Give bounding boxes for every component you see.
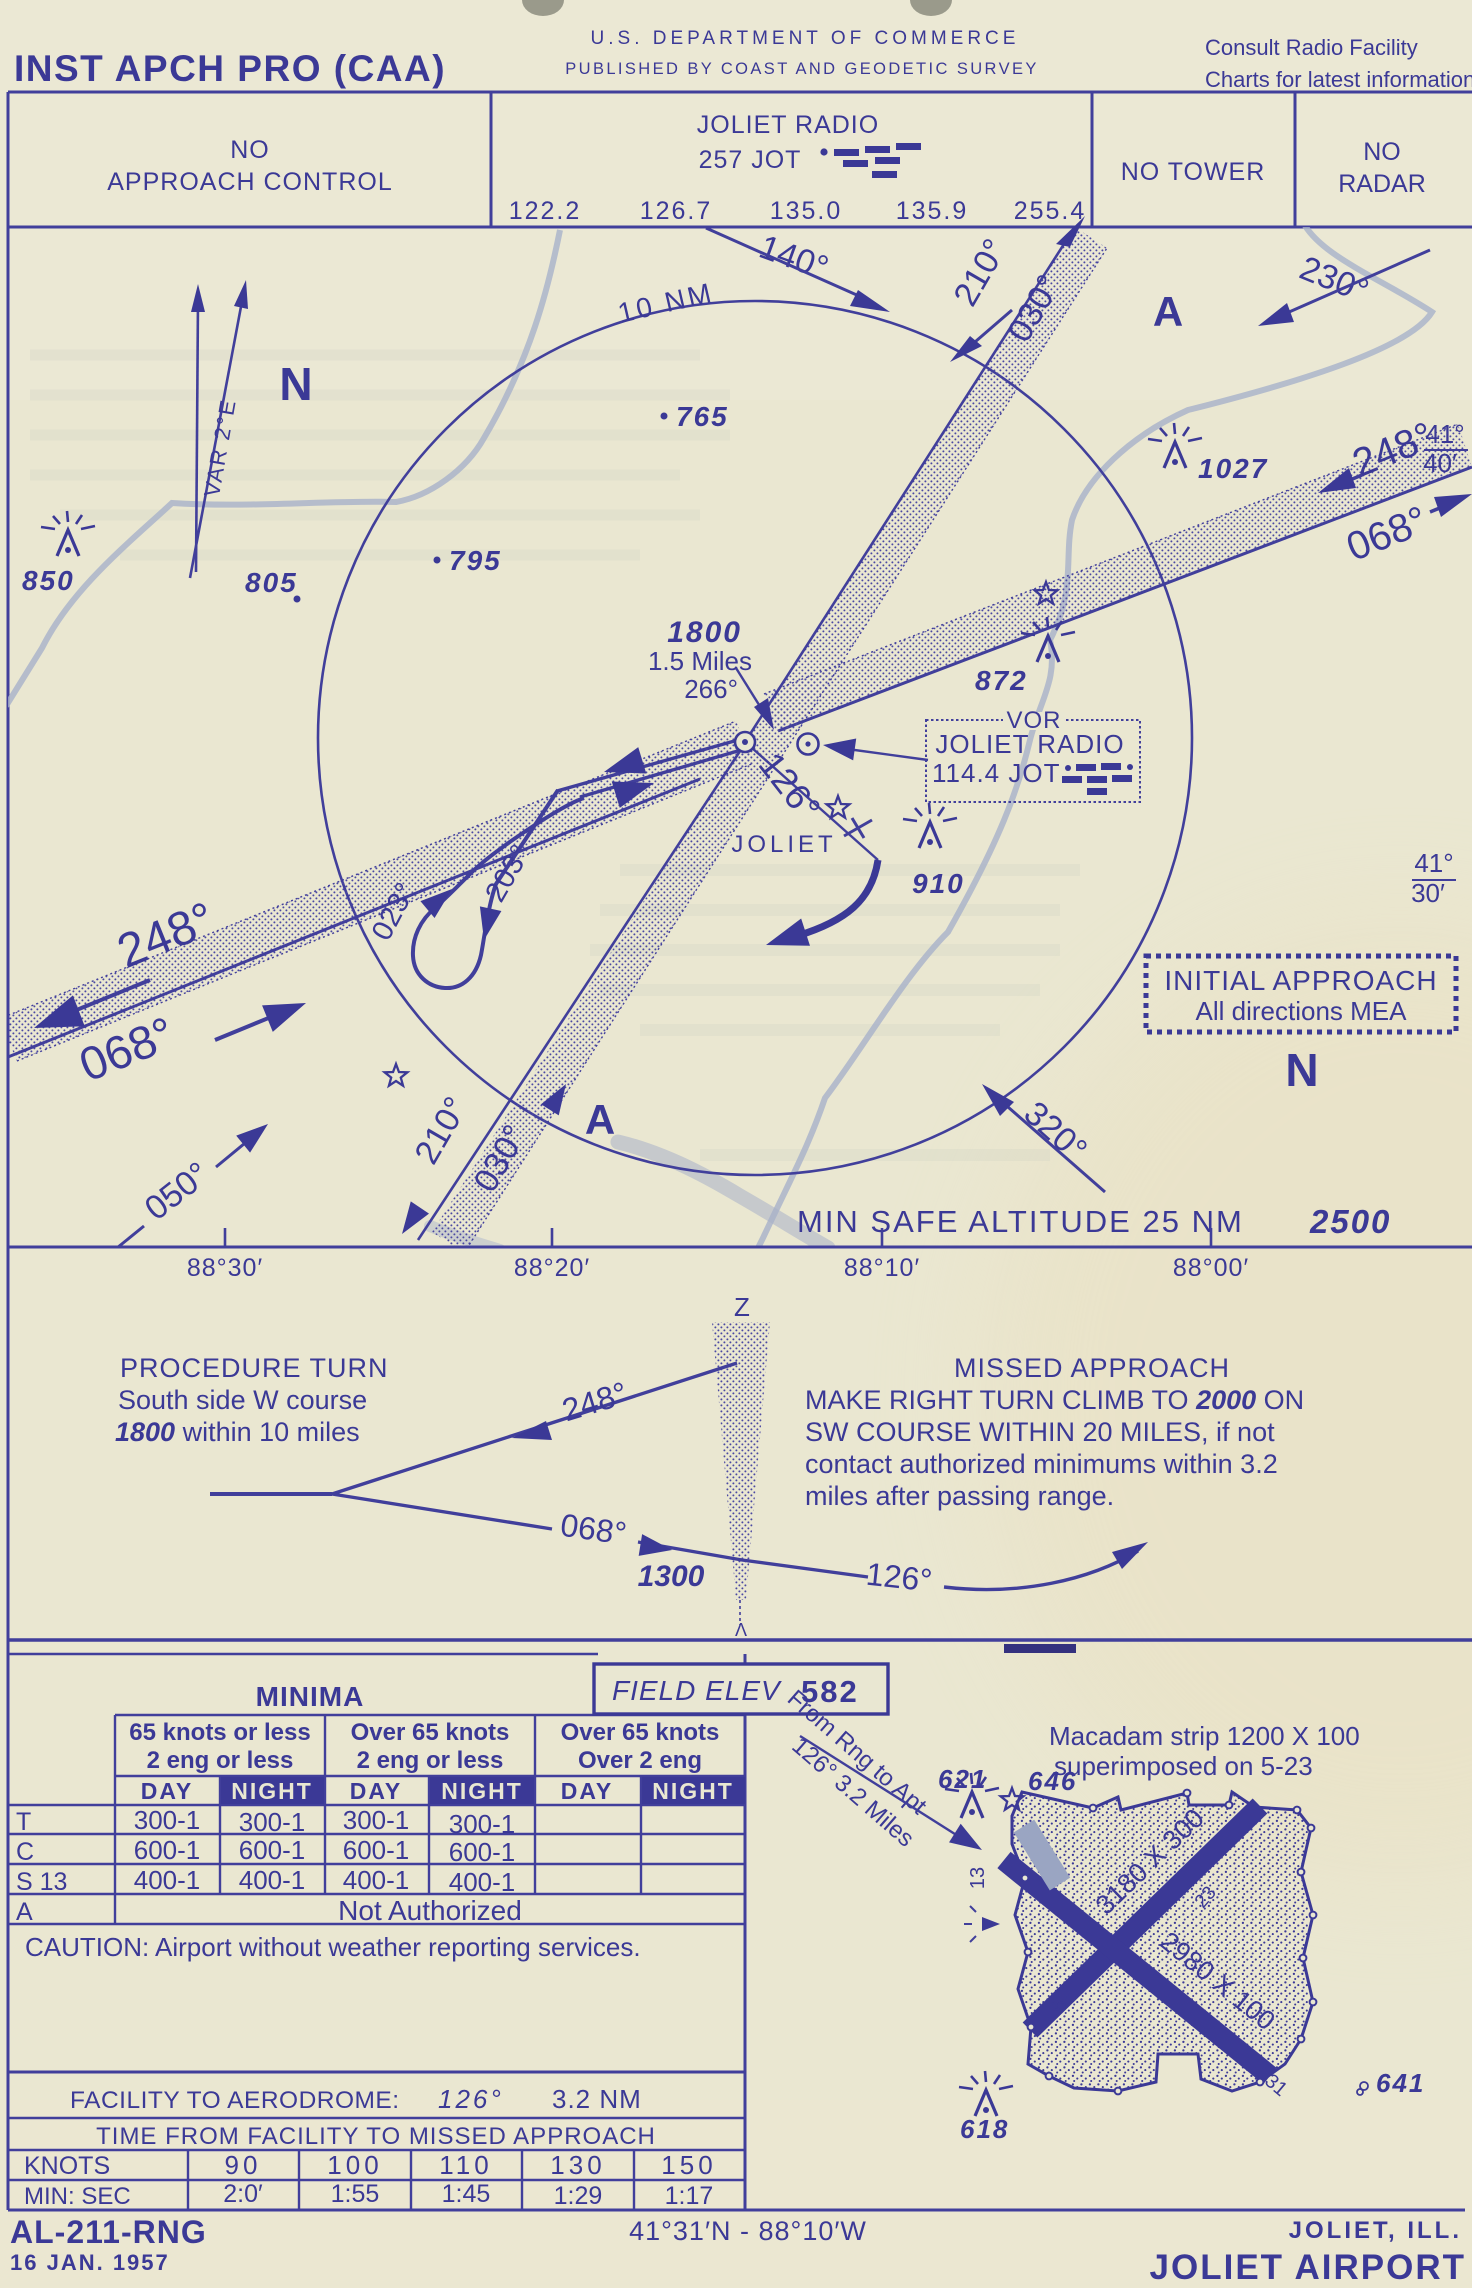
svg-text:300-1: 300-1 xyxy=(449,1809,516,1839)
svg-text:INST APCH PRO (CAA): INST APCH PRO (CAA) xyxy=(14,48,446,89)
svg-text:AL-211-RNG: AL-211-RNG xyxy=(10,2214,207,2250)
svg-text:T: T xyxy=(16,1808,31,1836)
svg-text:miles after passing range.: miles after passing range. xyxy=(805,1481,1114,1511)
svg-text:850: 850 xyxy=(22,565,75,596)
svg-text:1300: 1300 xyxy=(638,1560,705,1593)
svg-text:40′: 40′ xyxy=(1423,448,1457,478)
svg-text:65 knots or less: 65 knots or less xyxy=(129,1719,310,1746)
svg-text:114.4 JOT: 114.4 JOT xyxy=(932,758,1060,788)
svg-text:16 JAN. 1957: 16 JAN. 1957 xyxy=(10,2250,170,2275)
svg-text:300-1: 300-1 xyxy=(239,1807,306,1837)
svg-text:NO: NO xyxy=(230,136,270,164)
svg-text:MIN: SEC: MIN: SEC xyxy=(24,2183,131,2210)
svg-text:30′: 30′ xyxy=(1411,878,1445,908)
svg-text:superimposed on 5-23: superimposed on 5-23 xyxy=(1054,1751,1313,1781)
svg-text:126°: 126° xyxy=(864,1556,934,1599)
svg-text:Over 65 knots: Over 65 knots xyxy=(561,1719,720,1746)
svg-text:3.2 NM: 3.2 NM xyxy=(552,2084,642,2114)
svg-text:DAY: DAY xyxy=(561,1778,613,1804)
svg-text:130: 130 xyxy=(550,2150,605,2180)
svg-text:DAY: DAY xyxy=(141,1778,193,1804)
svg-text:1.5 Miles: 1.5 Miles xyxy=(648,646,752,676)
svg-text:2 eng or less: 2 eng or less xyxy=(147,1747,294,1774)
svg-text:300-1: 300-1 xyxy=(134,1805,201,1835)
svg-text:C: C xyxy=(16,1838,34,1866)
svg-text:APPROACH CONTROL: APPROACH CONTROL xyxy=(107,168,392,196)
svg-text:A: A xyxy=(1153,288,1183,335)
svg-text:400-1: 400-1 xyxy=(449,1867,516,1897)
svg-text:PUBLISHED BY COAST AND GEODETI: PUBLISHED BY COAST AND GEODETIC SURVEY xyxy=(565,60,1039,78)
svg-text:U.S. DEPARTMENT OF COMMERCE: U.S. DEPARTMENT OF COMMERCE xyxy=(591,28,1020,49)
svg-text:JOLIET: JOLIET xyxy=(731,831,836,858)
svg-text:1800 within 10 miles: 1800 within 10 miles xyxy=(115,1417,360,1447)
svg-text:CAUTION: Airport without weat: CAUTION: Airport without weather reporti… xyxy=(25,1932,641,1962)
svg-text:1:17: 1:17 xyxy=(665,2182,714,2210)
svg-text:MAKE RIGHT TURN CLIMB TO 2000: MAKE RIGHT TURN CLIMB TO 2000 ON xyxy=(805,1385,1304,1415)
svg-text:805: 805 xyxy=(245,567,298,598)
svg-text:TIME FROM FACILITY TO MISS: TIME FROM FACILITY TO MISSED APPROACH xyxy=(96,2123,656,2150)
svg-text:126°: 126° xyxy=(438,2084,504,2114)
svg-text:1:29: 1:29 xyxy=(554,2182,603,2210)
svg-text:641: 641 xyxy=(1376,2068,1425,2098)
svg-text:JOLIET AIRPORT: JOLIET AIRPORT xyxy=(1150,2248,1466,2287)
svg-text:110: 110 xyxy=(439,2150,492,2180)
svg-text:135.0: 135.0 xyxy=(770,197,843,225)
svg-text:NO: NO xyxy=(1363,138,1401,166)
svg-text:400-1: 400-1 xyxy=(134,1865,201,1895)
svg-text:All directions MEA: All directions MEA xyxy=(1196,996,1408,1026)
svg-text:SW COURSE WITHIN 20 MILES, if: SW COURSE WITHIN 20 MILES, if not xyxy=(805,1417,1275,1447)
svg-text:255.4: 255.4 xyxy=(1014,197,1087,225)
svg-text:1800: 1800 xyxy=(667,616,742,649)
svg-text:150: 150 xyxy=(661,2150,716,2180)
svg-text:Not Authorized: Not Authorized xyxy=(338,1895,522,1926)
svg-text:400-1: 400-1 xyxy=(239,1865,306,1895)
svg-text:N: N xyxy=(279,358,312,410)
svg-text:JOLIET, ILL.: JOLIET, ILL. xyxy=(1289,2217,1462,2244)
svg-text:618: 618 xyxy=(960,2114,1009,2144)
svg-text:MISSED APPROACH: MISSED APPROACH xyxy=(954,1353,1230,1383)
svg-text:Z: Z xyxy=(734,1292,750,1322)
svg-text:RADAR: RADAR xyxy=(1338,170,1426,198)
svg-text:266°: 266° xyxy=(684,674,738,704)
svg-text:NO TOWER: NO TOWER xyxy=(1121,158,1266,186)
svg-text:400-1: 400-1 xyxy=(343,1865,410,1895)
svg-text:JOLIET RADIO: JOLIET RADIO xyxy=(697,111,879,139)
svg-text:Λ: Λ xyxy=(735,1620,747,1640)
svg-text:126.7: 126.7 xyxy=(640,197,713,225)
svg-text:13: 13 xyxy=(967,1867,989,1889)
svg-text:Consult Radio Facility: Consult Radio Facility xyxy=(1205,35,1418,60)
svg-text:Macadam strip 1200 X 100: Macadam strip 1200 X 100 xyxy=(1049,1721,1360,1751)
svg-text:Over 2 eng: Over 2 eng xyxy=(578,1747,702,1774)
svg-text:100: 100 xyxy=(327,2150,382,2180)
svg-text:NIGHT: NIGHT xyxy=(652,1778,734,1804)
svg-text:1:55: 1:55 xyxy=(331,2180,380,2208)
svg-text:5: 5 xyxy=(1049,2000,1071,2011)
svg-text:A: A xyxy=(585,1096,615,1143)
svg-text:JOLIET RADIO: JOLIET RADIO xyxy=(935,729,1124,759)
svg-text:2 eng or less: 2 eng or less xyxy=(357,1747,504,1774)
svg-text:872: 872 xyxy=(975,665,1028,696)
svg-text:646: 646 xyxy=(1028,1766,1077,1796)
svg-text:90: 90 xyxy=(225,2150,262,2180)
svg-text:135.9: 135.9 xyxy=(896,197,969,225)
svg-text:NIGHT: NIGHT xyxy=(231,1778,313,1804)
svg-text:41°: 41° xyxy=(1425,419,1464,449)
svg-text:257 JOT: 257 JOT xyxy=(699,146,802,174)
svg-text:1027: 1027 xyxy=(1198,453,1268,484)
svg-text:41°31′N - 88°10′W: 41°31′N - 88°10′W xyxy=(629,2216,867,2246)
svg-text:INITIAL APPROACH: INITIAL APPROACH xyxy=(1164,965,1437,996)
svg-text:Charts for latest information: Charts for latest information xyxy=(1205,67,1472,92)
svg-text:765: 765 xyxy=(676,401,729,432)
svg-text:MINIMA: MINIMA xyxy=(256,1681,365,1712)
svg-text:FIELD ELEV: FIELD ELEV xyxy=(612,1675,782,1706)
svg-text:122.2: 122.2 xyxy=(509,197,582,225)
svg-text:DAY: DAY xyxy=(350,1778,402,1804)
svg-text:910: 910 xyxy=(912,868,965,899)
svg-text:FACILITY TO AERODROME:: FACILITY TO AERODROME: xyxy=(70,2087,400,2114)
svg-text:MIN SAFE ALTITUDE 25 NM: MIN SAFE ALTITUDE 25 NM xyxy=(797,1204,1244,1239)
svg-text:NIGHT: NIGHT xyxy=(441,1778,523,1804)
svg-text:N: N xyxy=(1285,1044,1318,1096)
svg-text:600-1: 600-1 xyxy=(343,1835,410,1865)
svg-text:88°00′: 88°00′ xyxy=(1173,1254,1249,1282)
svg-text:contact authorized minimums wi: contact authorized minimums within 3.2 xyxy=(805,1449,1278,1479)
svg-text:600-1: 600-1 xyxy=(239,1835,306,1865)
svg-text:S 13: S 13 xyxy=(16,1868,67,1896)
svg-text:88°10′: 88°10′ xyxy=(844,1254,920,1282)
svg-text:2500: 2500 xyxy=(1309,1203,1391,1240)
svg-text:41°: 41° xyxy=(1414,848,1453,878)
svg-text:A: A xyxy=(16,1898,33,1926)
svg-text:KNOTS: KNOTS xyxy=(24,2152,110,2180)
svg-text:600-1: 600-1 xyxy=(449,1837,516,1867)
svg-text:795: 795 xyxy=(449,545,502,576)
svg-text:South side W course: South side W course xyxy=(118,1385,367,1415)
svg-text:1:45: 1:45 xyxy=(442,2180,491,2208)
svg-text:88°30′: 88°30′ xyxy=(187,1254,263,1282)
svg-text:600-1: 600-1 xyxy=(134,1835,201,1865)
svg-text:88°20′: 88°20′ xyxy=(514,1254,590,1282)
svg-text:PROCEDURE TURN: PROCEDURE TURN xyxy=(120,1353,389,1383)
svg-text:2:0′: 2:0′ xyxy=(223,2180,263,2208)
svg-text:300-1: 300-1 xyxy=(343,1805,410,1835)
svg-text:Over 65 knots: Over 65 knots xyxy=(351,1719,510,1746)
